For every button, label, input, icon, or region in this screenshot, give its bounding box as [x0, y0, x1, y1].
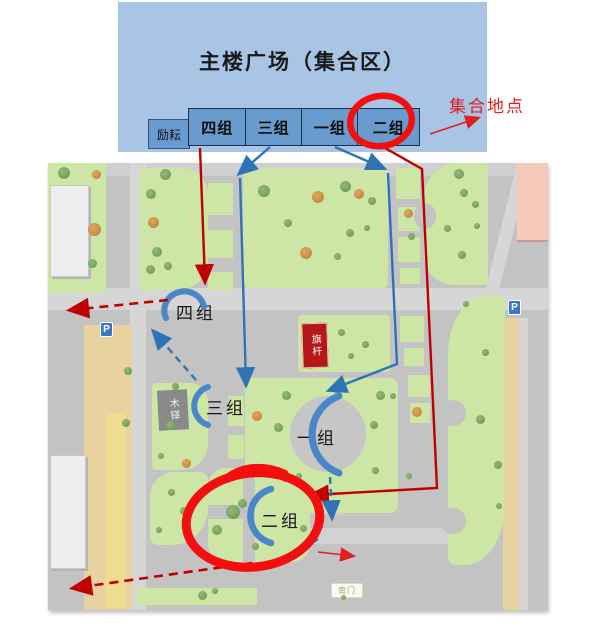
- tree-icon: [164, 262, 172, 270]
- page-title: 主楼广场（集合区）: [118, 46, 487, 76]
- grass: [137, 588, 257, 605]
- tree-icon: [444, 225, 451, 232]
- liyun-building-box: 励耘: [148, 119, 190, 149]
- tree-icon: [156, 527, 162, 533]
- tree-icon: [226, 505, 240, 519]
- tree-icon: [160, 169, 171, 180]
- tree-icon: [338, 329, 345, 336]
- path-strip: [503, 318, 519, 610]
- tree-icon: [482, 349, 489, 356]
- map-label-group3: 三组: [206, 394, 246, 419]
- group-box-3: 三组: [245, 108, 303, 146]
- tree-icon: [341, 595, 346, 600]
- parking-sign: P: [100, 322, 113, 337]
- tree-icon: [282, 391, 291, 400]
- tree-icon: [58, 167, 70, 179]
- grass: [400, 268, 420, 284]
- tree-icon: [88, 259, 97, 268]
- tree-icon: [458, 251, 466, 259]
- tree-icon: [284, 219, 292, 227]
- tree-icon: [463, 301, 469, 307]
- grass: [208, 272, 233, 290]
- tree-icon: [370, 421, 378, 429]
- tree-icon: [182, 459, 191, 468]
- grass-notch: [440, 508, 466, 534]
- tree-icon: [172, 383, 179, 390]
- campus-map: 旗杆 木铎 P P 南门 四组 三组 一组 二组: [48, 163, 548, 610]
- tree-icon: [166, 421, 175, 430]
- flagpole-marker: 旗杆: [301, 323, 329, 369]
- grass: [208, 183, 233, 215]
- tree-icon: [252, 411, 262, 421]
- tree-icon: [212, 525, 222, 535]
- tree-icon: [158, 453, 164, 459]
- pink-building: [517, 163, 548, 242]
- road: [310, 528, 460, 544]
- tree-icon: [274, 423, 283, 432]
- tree-icon: [180, 507, 188, 515]
- group-box-row: 四组 三组 一组 二组: [190, 108, 420, 146]
- tree-icon: [296, 473, 302, 479]
- grass: [208, 230, 233, 258]
- grass: [150, 472, 208, 545]
- tree-icon: [354, 189, 364, 199]
- tree-icon: [88, 223, 101, 236]
- tree-icon: [390, 393, 396, 399]
- tree-icon: [408, 233, 415, 240]
- tree-icon: [362, 341, 369, 348]
- tree-icon: [334, 253, 341, 260]
- flagpole-label: 旗杆: [307, 333, 323, 358]
- grass-notch: [440, 400, 466, 426]
- grass: [400, 316, 424, 342]
- tree-icon: [368, 197, 376, 205]
- tree-icon: [346, 229, 354, 237]
- tree-icon: [340, 181, 351, 192]
- tree-icon: [460, 189, 468, 197]
- assembly-point-label: 集合地点: [449, 92, 525, 117]
- path-strip: [106, 413, 126, 608]
- assembly-area-panel: 主楼广场（集合区） 励耘 四组 三组 一组 二组: [118, 2, 487, 152]
- grass: [398, 237, 420, 262]
- building: [50, 455, 86, 569]
- map-label-group4: 四组: [176, 299, 216, 324]
- tree-icon: [406, 473, 412, 479]
- building: [50, 185, 89, 277]
- tree-icon: [146, 189, 156, 199]
- tree-icon: [454, 169, 464, 179]
- group-box-1: 一组: [301, 108, 359, 146]
- tree-icon: [476, 415, 485, 424]
- south-gate-label: 南门: [331, 583, 363, 598]
- tree-icon: [412, 407, 422, 417]
- parking-sign: P: [508, 300, 521, 315]
- map-label-group2: 二组: [261, 507, 301, 532]
- page: { "header": { "title": "主楼广场（集合区）", "bui…: [0, 0, 610, 623]
- tree-icon: [124, 367, 132, 375]
- tree-icon: [152, 247, 162, 257]
- tree-icon: [252, 543, 259, 550]
- tree-icon: [238, 499, 247, 508]
- road: [519, 318, 528, 610]
- tree-icon: [258, 185, 270, 197]
- tree-icon: [376, 391, 385, 400]
- tree-icon: [282, 475, 289, 482]
- grass-notch: [414, 203, 436, 229]
- tree-icon: [254, 467, 261, 474]
- tree-icon: [494, 461, 502, 469]
- tree-icon: [92, 170, 101, 179]
- tree-icon: [198, 591, 207, 600]
- group-box-2: 二组: [357, 108, 420, 146]
- grass: [404, 348, 424, 366]
- tree-icon: [348, 353, 354, 359]
- tree-icon: [474, 223, 480, 229]
- tree-icon: [212, 588, 218, 594]
- grass: [408, 375, 430, 397]
- group-box-4: 四组: [188, 108, 246, 146]
- tree-icon: [496, 503, 502, 509]
- map-label-group1: 一组: [297, 424, 337, 449]
- grass: [396, 168, 420, 199]
- tree-icon: [300, 247, 312, 259]
- tree-icon: [300, 525, 307, 532]
- tree-icon: [312, 191, 324, 203]
- tree-icon: [148, 217, 159, 228]
- tree-icon: [404, 209, 413, 218]
- tree-icon: [146, 265, 155, 274]
- tree-icon: [168, 489, 175, 496]
- tree-icon: [472, 201, 479, 208]
- tree-icon: [364, 225, 370, 231]
- tree-icon: [122, 419, 130, 427]
- bell-label: 木铎: [165, 398, 181, 423]
- tree-icon: [372, 467, 379, 474]
- grass: [228, 435, 244, 459]
- tree-icon: [334, 387, 341, 394]
